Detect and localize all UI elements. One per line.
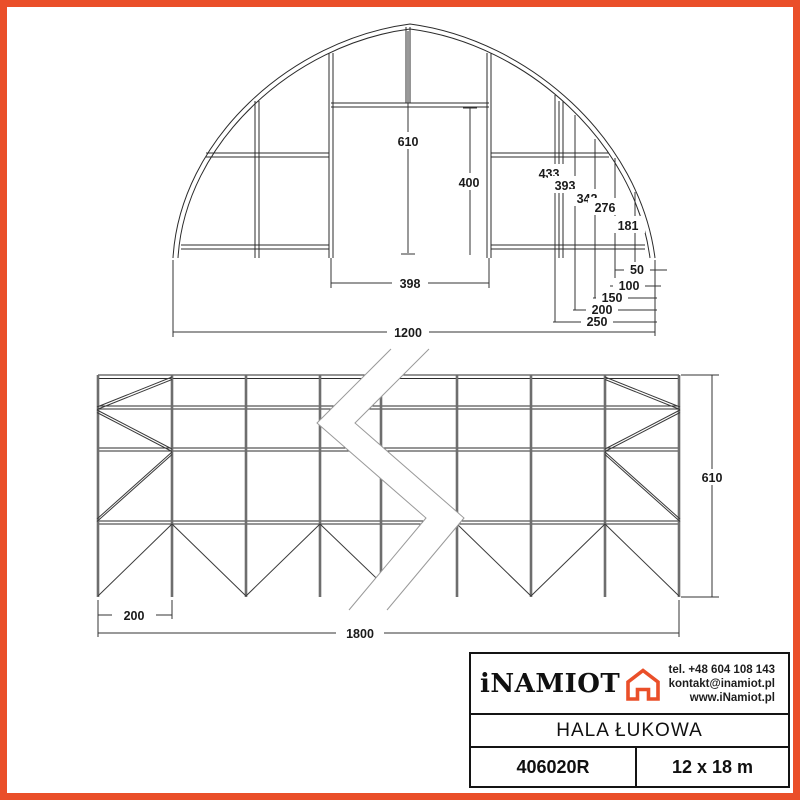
contact-phone: tel. +48 604 108 143 — [669, 663, 775, 677]
brand-logo-text: iNAMIOT — [480, 671, 620, 697]
dim-label-door-height: 400 — [459, 176, 480, 190]
model-number: 406020R — [471, 748, 637, 786]
dim-label-side-height: 610 — [702, 471, 723, 485]
front-elevation-dimensions — [173, 31, 667, 337]
end-braces — [97, 377, 680, 522]
dim-label-total-length: 1800 — [346, 627, 374, 641]
break-symbol — [317, 349, 464, 610]
side-elevation-drawing: 200 1800 610 — [97, 349, 730, 641]
hall-size: 12 x 18 m — [637, 748, 788, 786]
dim-label-offset-250: 250 — [587, 315, 608, 329]
dim-label-center-height: 610 — [398, 135, 419, 149]
contact-info: tel. +48 604 108 143 kontakt@inamiot.pl … — [669, 663, 775, 705]
brand-logo: iNAMIOT — [480, 666, 661, 701]
contact-email[interactable]: kontakt@inamiot.pl — [669, 677, 775, 691]
title-block-header-row: iNAMIOT tel. +48 604 108 143 kontakt@ina… — [471, 654, 788, 715]
product-name: HALA ŁUKOWA — [471, 715, 788, 748]
house-icon — [625, 668, 661, 701]
dim-label-door-width: 398 — [400, 277, 421, 291]
spec-sheet: 610 400 433 393 342 276 181 50 100 150 2… — [0, 0, 800, 800]
dim-label-total-width: 1200 — [394, 326, 422, 340]
dim-label-bay-width: 200 — [124, 609, 145, 623]
side-elevation-dimensions — [98, 375, 719, 637]
dim-label-arc-181: 181 — [618, 219, 639, 233]
dim-label-offset-50: 50 — [630, 263, 644, 277]
contact-website[interactable]: www.iNamiot.pl — [669, 691, 775, 705]
front-elevation-labels: 610 400 433 393 342 276 181 50 100 150 2… — [387, 132, 650, 340]
dim-label-arc-276: 276 — [595, 201, 616, 215]
title-block: iNAMIOT tel. +48 604 108 143 kontakt@ina… — [469, 652, 790, 788]
title-block-bottom-row: 406020R 12 x 18 m — [471, 748, 788, 786]
